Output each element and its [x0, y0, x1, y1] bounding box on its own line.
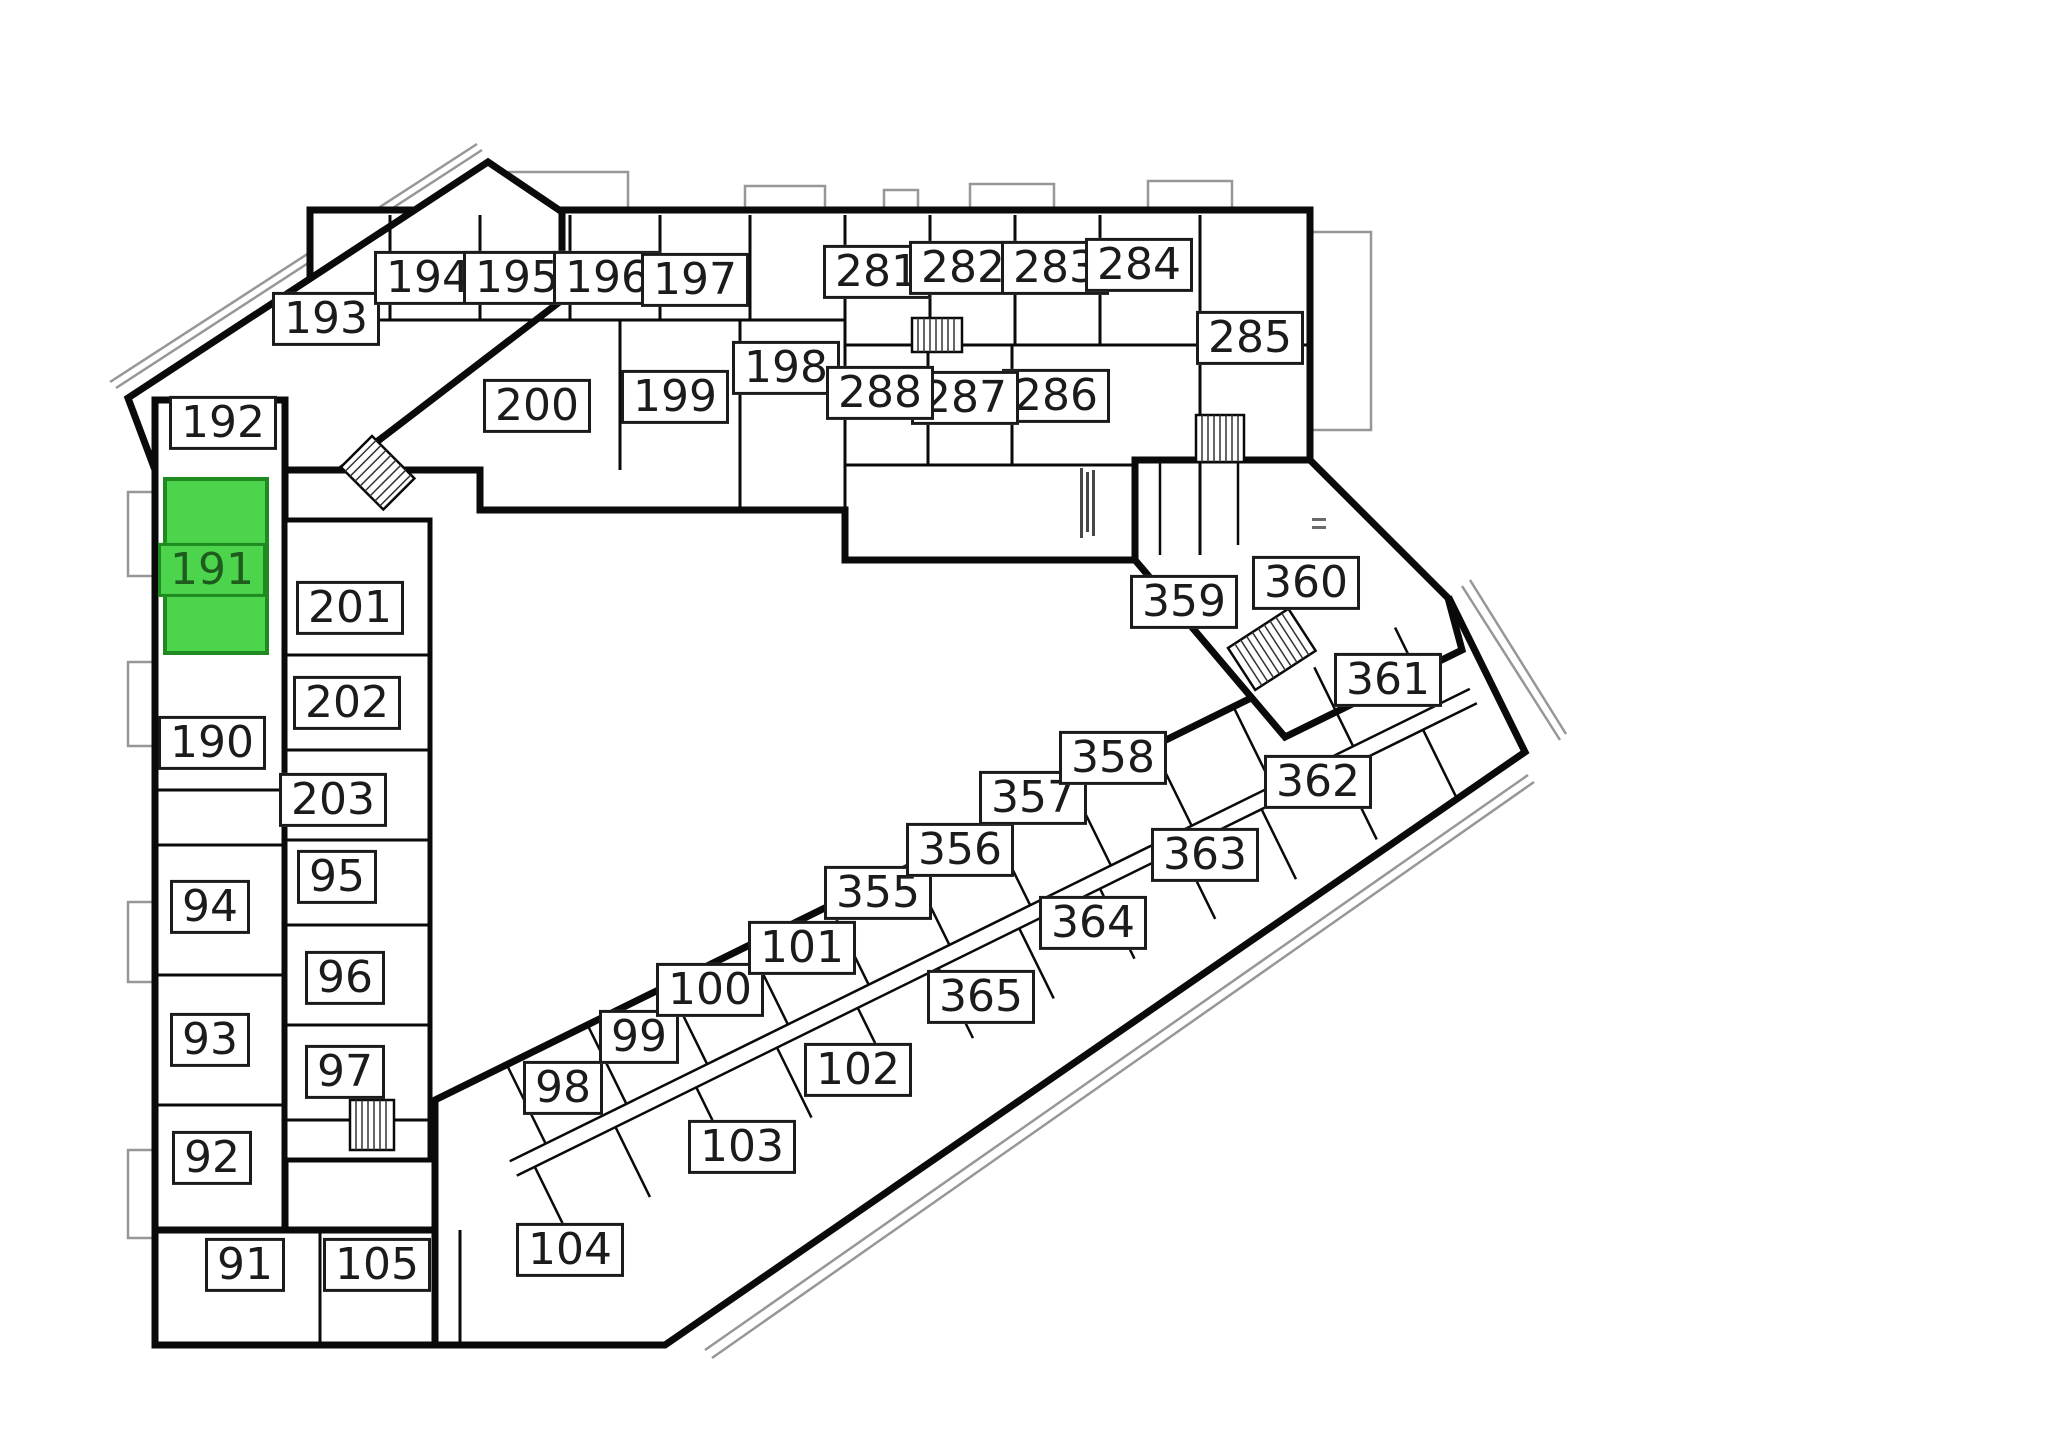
room-label-191-selected[interactable]: 191	[158, 543, 266, 597]
room-label-101[interactable]: 101	[748, 921, 856, 975]
micro-annotation	[1080, 468, 1095, 538]
room-label-197[interactable]: 197	[641, 253, 749, 307]
room-label-92[interactable]: 92	[172, 1131, 252, 1185]
room-label-201[interactable]: 201	[296, 581, 404, 635]
room-label-93[interactable]: 93	[170, 1013, 250, 1067]
staircase-top-middle	[912, 318, 962, 352]
room-label-98[interactable]: 98	[523, 1061, 603, 1115]
room-label-192[interactable]: 192	[169, 396, 277, 450]
room-label-284[interactable]: 284	[1085, 238, 1193, 292]
room-label-199[interactable]: 199	[621, 370, 729, 424]
room-label-97[interactable]: 97	[305, 1045, 385, 1099]
staircase-bottomleft	[350, 1100, 394, 1150]
room-label-203[interactable]: 203	[279, 773, 387, 827]
room-label-95[interactable]: 95	[297, 850, 377, 904]
room-label-200[interactable]: 200	[483, 379, 591, 433]
room-label-102[interactable]: 102	[804, 1043, 912, 1097]
room-label-190[interactable]: 190	[158, 716, 266, 770]
room-label-103[interactable]: 103	[688, 1120, 796, 1174]
staircase-right-wing-top	[1196, 415, 1244, 462]
room-label-104[interactable]: 104	[516, 1223, 624, 1277]
room-label-285[interactable]: 285	[1196, 311, 1304, 365]
terrace-outline	[1307, 232, 1371, 430]
room-label-362[interactable]: 362	[1264, 755, 1372, 809]
room-label-358[interactable]: 358	[1059, 731, 1167, 785]
room-label-356[interactable]: 356	[906, 823, 1014, 877]
room-label-105[interactable]: 105	[323, 1238, 431, 1292]
floor-plan: 91 92 93 94 95 96 97 98 99 100 101 102 1…	[0, 0, 2048, 1447]
room-label-361[interactable]: 361	[1334, 653, 1442, 707]
room-label-91[interactable]: 91	[205, 1238, 285, 1292]
room-label-198[interactable]: 198	[732, 341, 840, 395]
room-label-99[interactable]: 99	[599, 1010, 679, 1064]
room-label-288[interactable]: 288	[826, 366, 934, 420]
room-label-193[interactable]: 193	[272, 292, 380, 346]
room-label-202[interactable]: 202	[293, 676, 401, 730]
room-label-363[interactable]: 363	[1151, 828, 1259, 882]
room-label-96[interactable]: 96	[305, 951, 385, 1005]
room-label-360[interactable]: 360	[1252, 556, 1360, 610]
room-label-365[interactable]: 365	[927, 970, 1035, 1024]
room-label-359[interactable]: 359	[1130, 575, 1238, 629]
room-label-94[interactable]: 94	[170, 880, 250, 934]
room-label-364[interactable]: 364	[1039, 896, 1147, 950]
